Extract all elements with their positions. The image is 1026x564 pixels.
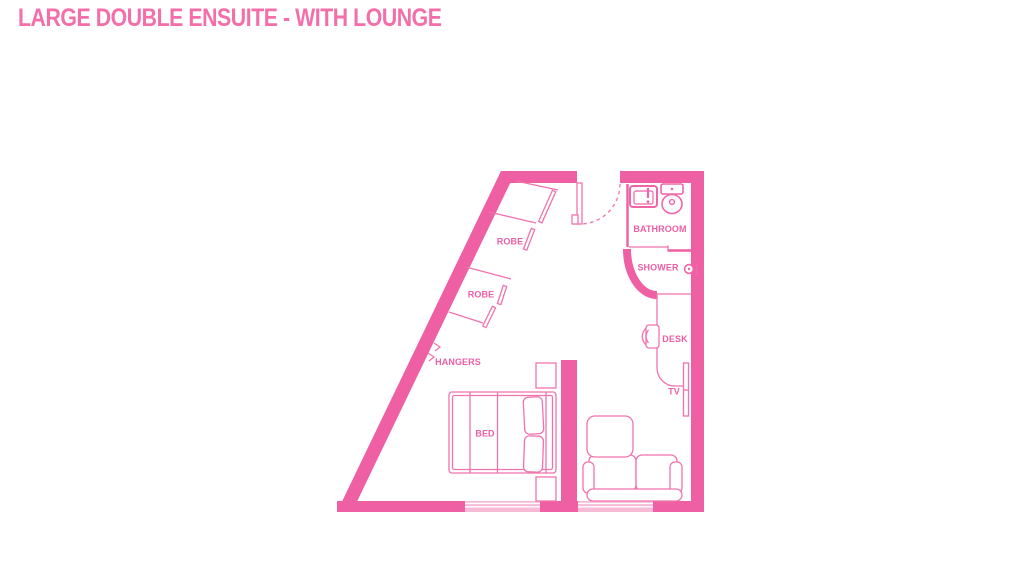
label-shower: SHOWER (637, 263, 679, 273)
sofa-front-rail (587, 489, 682, 501)
bed (449, 392, 556, 473)
sofa-seat (589, 455, 636, 491)
sofa (583, 416, 682, 501)
pillow (523, 436, 543, 473)
window-left (465, 501, 540, 512)
label-tv: TV (668, 387, 680, 397)
partition-wall (561, 360, 577, 512)
door-arc (580, 184, 621, 224)
robe-shelf-line (466, 267, 511, 279)
label-robe-upper: ROBE (497, 237, 523, 247)
bathroom (627, 184, 697, 295)
sofa-back-cushion (587, 416, 633, 457)
label-hangers: HANGERS (435, 357, 481, 367)
floorplan-canvas: ROBE ROBE HANGERS BED BATHROOM SHOWER DE… (0, 0, 1026, 564)
label-desk: DESK (662, 334, 688, 344)
robe-rail (539, 190, 556, 223)
side-table-top (536, 363, 556, 388)
robe-rail (497, 285, 506, 304)
pillow (523, 397, 544, 435)
sofa-arm-left (583, 462, 594, 493)
side-table-bottom (536, 477, 556, 501)
door-swing (572, 183, 620, 224)
right-wall (691, 171, 704, 512)
robe-rail (483, 306, 496, 327)
label-bed: BED (475, 429, 495, 439)
page: LARGE DOUBLE ENSUITE - WITH LOUNGE (0, 0, 1026, 564)
door-knob (572, 215, 578, 224)
robe-shelf-line (489, 212, 536, 223)
window-right (578, 501, 653, 512)
robe-rail (523, 228, 534, 250)
robe-shelf-line (449, 312, 483, 323)
sink-icon (630, 186, 657, 207)
label-robe-lower: ROBE (468, 290, 494, 300)
desk-chair-icon (642, 325, 659, 348)
tv-icon (684, 363, 689, 416)
label-bathroom: BATHROOM (633, 224, 686, 234)
toilet-icon (661, 184, 683, 214)
